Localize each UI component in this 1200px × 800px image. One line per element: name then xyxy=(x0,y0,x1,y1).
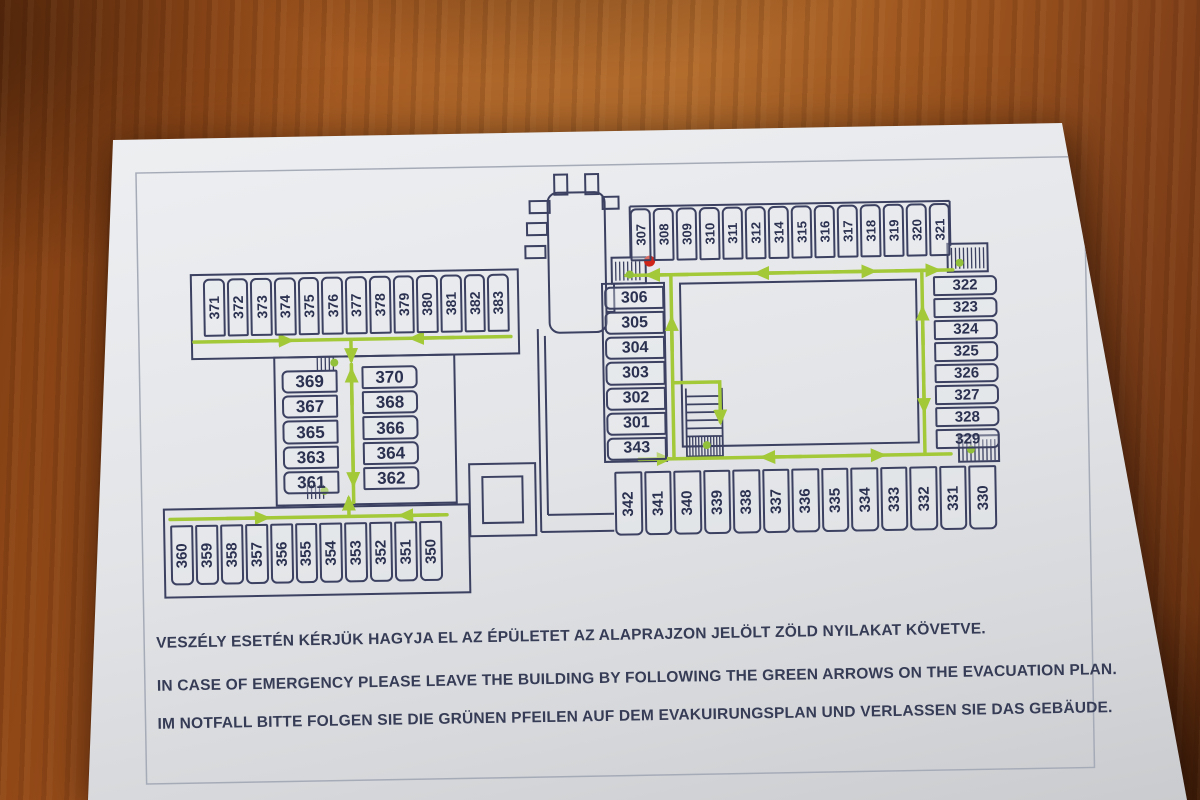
room-cell: 377 xyxy=(345,276,368,334)
room-cell: 361 xyxy=(283,470,339,494)
room-cell: 362 xyxy=(363,466,419,490)
paper-shadow: 371 372 373 374 375 376 377 378 379 380 … xyxy=(0,0,1200,800)
room-cell: 335 xyxy=(821,468,850,532)
room-cell: 326 xyxy=(934,363,998,384)
room-cell: 308 xyxy=(653,208,675,261)
room-cell: 324 xyxy=(934,319,998,340)
room-cell: 302 xyxy=(606,386,666,410)
room-row-307-321: 307 308 309 310 311 312 314 315 316 317 … xyxy=(630,203,951,262)
room-cell: 314 xyxy=(768,206,790,259)
room-cell: 333 xyxy=(880,467,909,531)
room-cell: 357 xyxy=(245,524,269,584)
room-row-350-360: 360 359 358 357 356 355 354 353 352 351 … xyxy=(170,521,443,586)
room-cell: 309 xyxy=(676,207,698,260)
room-cell: 339 xyxy=(703,470,732,534)
room-cell: 379 xyxy=(392,275,415,333)
room-cell: 342 xyxy=(614,471,643,535)
room-cell: 334 xyxy=(850,467,879,531)
room-cell: 380 xyxy=(416,275,439,333)
room-cell: 328 xyxy=(935,406,999,427)
room-cell: 375 xyxy=(298,277,321,335)
room-cell: 378 xyxy=(369,276,392,334)
room-cell: 370 xyxy=(361,365,417,389)
tower-outline xyxy=(547,192,606,333)
room-cell: 330 xyxy=(969,465,998,529)
room-cell: 301 xyxy=(606,412,666,436)
photo-scene: 371 372 373 374 375 376 377 378 379 380 … xyxy=(0,0,1200,800)
room-col-361-369: 369 367 365 363 361 xyxy=(281,370,339,495)
room-cell: 311 xyxy=(722,206,744,259)
room-cell: 303 xyxy=(605,361,665,385)
room-cell: 332 xyxy=(910,466,939,530)
room-cell: 382 xyxy=(463,274,486,332)
room-row-371-383: 371 372 373 374 375 376 377 378 379 380 … xyxy=(203,274,510,337)
courtyard-large xyxy=(680,279,919,446)
room-cell: 376 xyxy=(321,276,344,334)
room-cell: 320 xyxy=(906,203,928,256)
courtyard-small-inner xyxy=(482,476,523,523)
room-cell: 365 xyxy=(282,420,338,444)
room-cell: 355 xyxy=(295,523,319,583)
room-cell: 350 xyxy=(419,521,443,581)
courtyard-small-outer xyxy=(469,463,536,536)
room-cell: 304 xyxy=(605,336,665,360)
plan-content: 371 372 373 374 375 376 377 378 379 380 … xyxy=(0,0,1200,800)
room-cell: 305 xyxy=(604,311,664,335)
room-col-301-306-343: 306 305 304 303 302 301 343 xyxy=(604,286,667,461)
room-cell: 343 xyxy=(607,437,667,461)
room-cell: 327 xyxy=(935,384,999,405)
room-cell: 360 xyxy=(170,525,194,585)
room-cell: 321 xyxy=(929,203,951,256)
room-cell: 340 xyxy=(673,470,702,534)
room-cell: 366 xyxy=(362,416,418,440)
room-cell: 353 xyxy=(344,522,368,582)
room-cell: 381 xyxy=(440,274,463,332)
room-cell: 373 xyxy=(250,278,273,336)
room-cell: 367 xyxy=(282,395,338,419)
room-col-362-370: 370 368 366 364 362 xyxy=(361,365,419,490)
room-cell: 354 xyxy=(320,523,344,583)
room-cell: 329 xyxy=(936,428,1000,449)
room-cell: 352 xyxy=(369,522,393,582)
room-cell: 307 xyxy=(630,208,652,261)
room-cell: 322 xyxy=(933,275,997,296)
room-row-330-342: 342 341 340 339 338 337 336 335 334 333 … xyxy=(614,465,997,536)
room-cell: 363 xyxy=(283,445,339,469)
room-cell: 312 xyxy=(745,206,767,259)
room-cell: 319 xyxy=(883,204,905,257)
room-cell: 310 xyxy=(699,207,721,260)
room-cell: 341 xyxy=(644,471,673,535)
room-cell: 338 xyxy=(732,469,761,533)
room-cell: 359 xyxy=(195,525,219,585)
room-cell: 369 xyxy=(281,370,337,394)
room-cell: 374 xyxy=(274,277,297,335)
room-cell: 316 xyxy=(814,205,836,258)
room-cell: 318 xyxy=(860,204,882,257)
room-cell: 325 xyxy=(934,341,998,362)
room-cell: 306 xyxy=(604,286,664,310)
room-cell: 371 xyxy=(203,279,226,337)
room-cell: 317 xyxy=(837,204,859,257)
room-cell: 315 xyxy=(791,205,813,258)
room-col-322-329: 322 323 324 325 326 327 328 329 xyxy=(933,275,1000,449)
room-cell: 356 xyxy=(270,523,294,583)
evacuation-plan-paper: 371 372 373 374 375 376 377 378 379 380 … xyxy=(0,0,1200,800)
room-cell: 358 xyxy=(220,524,244,584)
room-cell: 383 xyxy=(487,274,510,332)
room-cell: 336 xyxy=(791,468,820,532)
room-cell: 331 xyxy=(939,466,968,530)
room-cell: 372 xyxy=(227,278,250,336)
room-cell: 364 xyxy=(363,441,419,465)
room-cell: 323 xyxy=(933,297,997,318)
room-cell: 351 xyxy=(394,521,418,581)
room-cell: 337 xyxy=(762,469,791,533)
room-cell: 368 xyxy=(362,390,418,414)
